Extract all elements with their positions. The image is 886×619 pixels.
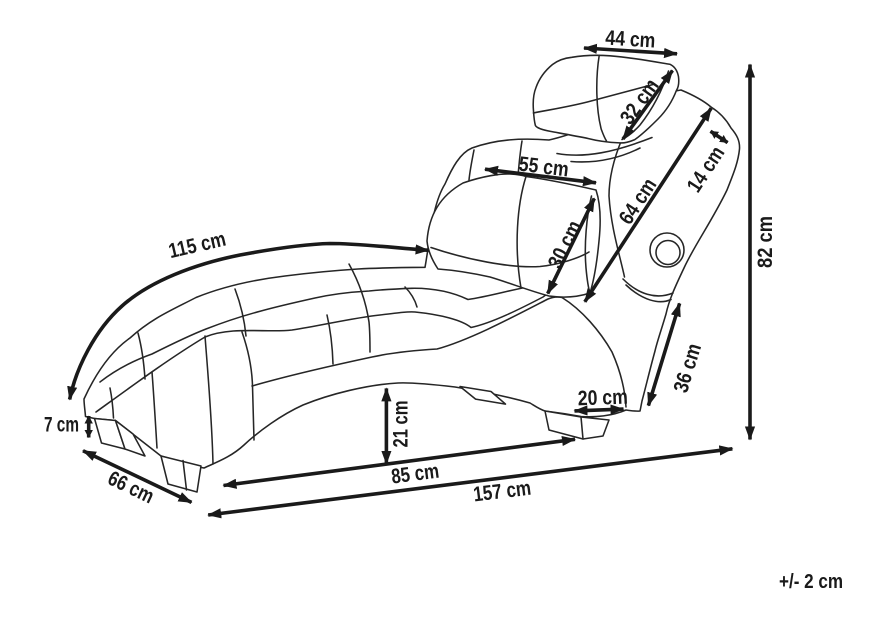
svg-text:36 cm: 36 cm — [669, 341, 706, 396]
svg-text:7 cm: 7 cm — [44, 414, 79, 437]
svg-text:20 cm: 20 cm — [577, 386, 628, 411]
svg-text:21 cm: 21 cm — [390, 401, 413, 448]
svg-text:82 cm: 82 cm — [754, 216, 777, 268]
svg-text:44 cm: 44 cm — [605, 27, 656, 53]
svg-text:115 cm: 115 cm — [166, 228, 228, 263]
svg-text:85 cm: 85 cm — [390, 460, 441, 489]
svg-text:+/- 2 cm: +/- 2 cm — [779, 571, 843, 593]
